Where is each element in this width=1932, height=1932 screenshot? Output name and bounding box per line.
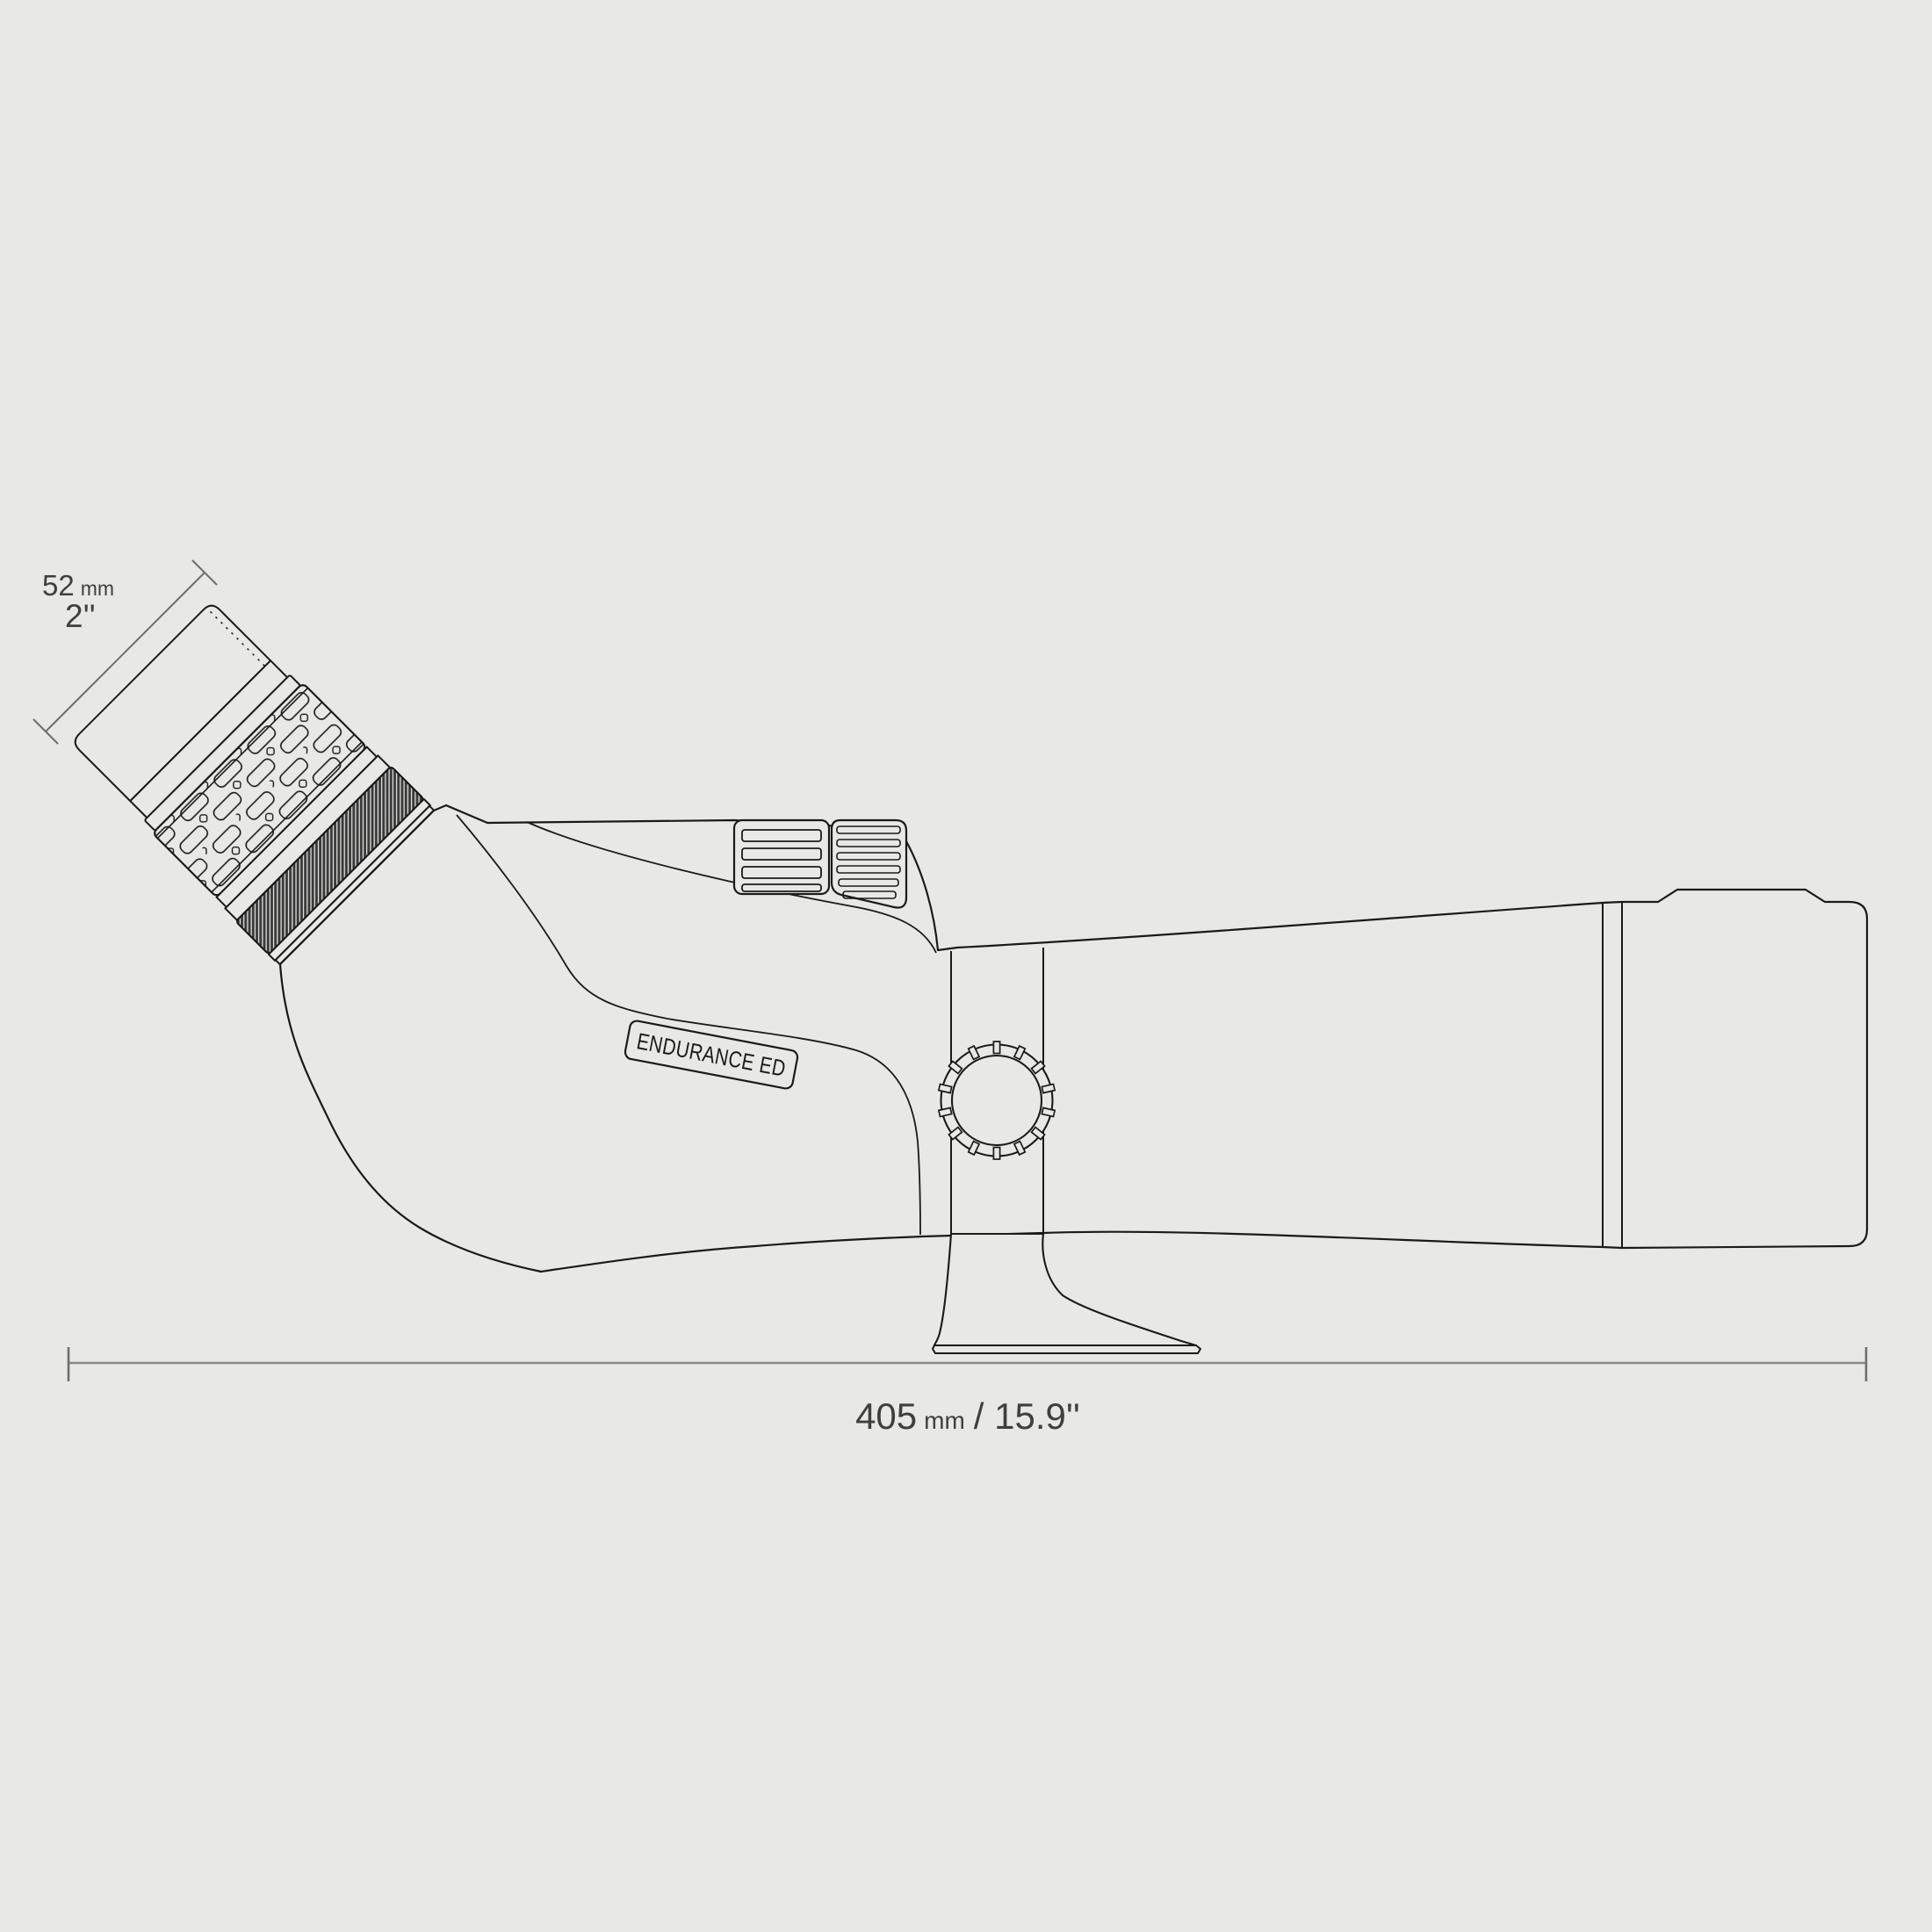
grip-pad-right xyxy=(832,820,906,908)
length-dimension-annotation: 405mm/ 15.9'' xyxy=(68,1347,1866,1437)
length-dimension-label: 405mm/ 15.9'' xyxy=(855,1395,1080,1437)
scope-body xyxy=(280,805,1867,1272)
grip-pad-left xyxy=(734,820,829,894)
diagram-canvas: 52mm 2'' xyxy=(0,0,1932,1932)
eyepiece-dimension-inches: 2'' xyxy=(65,598,96,634)
tripod-foot xyxy=(934,1234,1196,1345)
focus-knob-outer xyxy=(941,1045,1053,1157)
spotting-scope-diagram: 52mm 2'' xyxy=(0,0,1932,1932)
tripod-foot-base-plate xyxy=(933,1345,1200,1353)
eyepiece-dimension-label: 52mm xyxy=(42,569,114,602)
